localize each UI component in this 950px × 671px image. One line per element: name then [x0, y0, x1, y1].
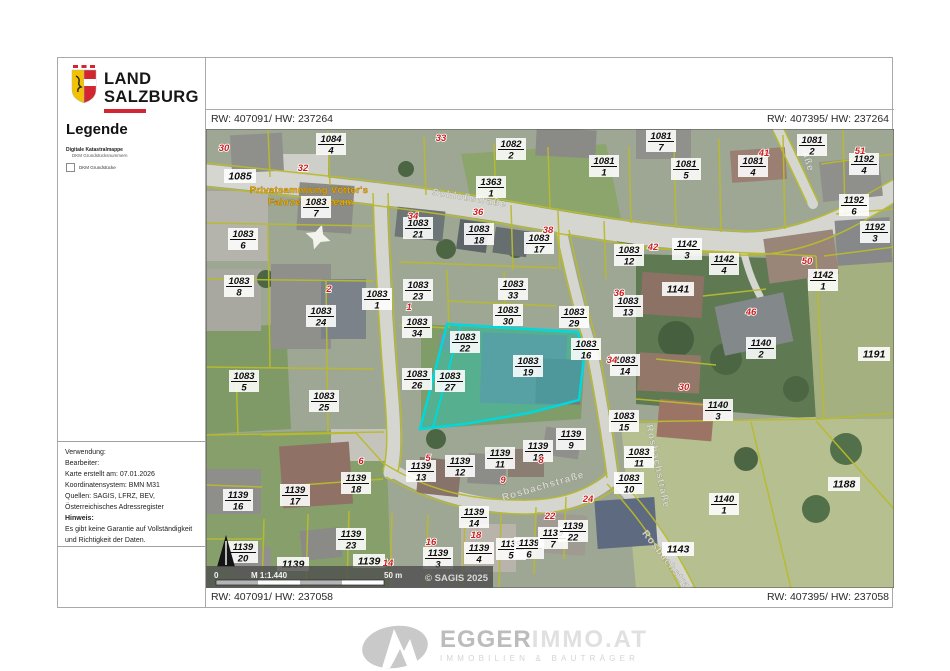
svg-text:24: 24: [315, 318, 327, 329]
parcel-label: 1141: [662, 282, 694, 296]
parcel-label: 10817: [646, 130, 676, 154]
house-number: 51: [855, 146, 866, 157]
svg-text:1139: 1139: [228, 490, 249, 501]
svg-text:25: 25: [318, 403, 330, 414]
house-number: 5: [425, 453, 431, 464]
parcel-label: 1191: [858, 347, 890, 361]
svg-text:4: 4: [327, 146, 334, 157]
house-number: 6: [358, 456, 364, 467]
coordinate-strip-top: RW: 407091/ HW: 237264 RW: 407395/ HW: 2…: [206, 113, 894, 125]
parcel-label: 113911: [485, 447, 515, 471]
parcel-label: 11402: [746, 337, 776, 361]
legend-title: Legende: [66, 121, 128, 138]
parcel-label: 11423: [672, 238, 702, 262]
house-number: 9: [500, 475, 506, 486]
parcel-label: 108334: [402, 316, 432, 340]
info-note-label: Hinweis:: [65, 513, 205, 524]
parcel-label: 10838: [224, 275, 254, 299]
svg-text:1: 1: [721, 506, 726, 517]
scalebar-zero: 0: [214, 571, 219, 580]
legend-checkbox-row: DKM Grundstücke: [66, 163, 196, 172]
info-line: Koordinatensystem: BMN M31: [65, 480, 205, 491]
svg-text:1140: 1140: [714, 494, 735, 505]
svg-text:1083: 1083: [313, 391, 335, 402]
parcel-label: 11926: [839, 194, 869, 218]
svg-text:14: 14: [620, 367, 631, 378]
svg-text:1188: 1188: [833, 479, 856, 491]
svg-text:1139: 1139: [490, 448, 511, 459]
parcel-label: 11424: [709, 253, 739, 277]
parcel-label: 10811: [589, 155, 619, 179]
svg-text:1139: 1139: [563, 521, 584, 532]
svg-text:14: 14: [469, 519, 480, 530]
svg-text:1083: 1083: [232, 229, 254, 240]
legend-checkbox-label: DKM Grundstücke: [79, 165, 116, 170]
svg-text:13: 13: [623, 308, 634, 319]
svg-text:16: 16: [581, 351, 592, 362]
egger-tagline: IMMOBILIEN & BAUTRÄGER: [440, 654, 648, 663]
svg-text:1191: 1191: [863, 349, 886, 361]
parcel-label: 113913: [406, 460, 436, 484]
svg-text:1139: 1139: [464, 507, 485, 518]
info-line: und Richtigkeit der Daten.: [65, 535, 205, 546]
parcel-label: 13631: [476, 176, 506, 200]
parcel-label: 10831: [362, 288, 392, 312]
svg-text:1139: 1139: [358, 556, 381, 568]
svg-text:7: 7: [313, 209, 319, 220]
parcel-label: 10815: [671, 158, 701, 182]
parcel-label: 108326: [402, 368, 432, 392]
house-number: 1: [406, 302, 411, 313]
svg-text:1083: 1083: [407, 280, 429, 291]
parcel-label: 108318: [464, 223, 494, 247]
sagis-copyright: © SAGIS 2025: [425, 573, 489, 584]
map-top-rule: [206, 109, 894, 110]
parcel-label: 11923: [860, 221, 890, 245]
svg-text:1081: 1081: [650, 131, 671, 142]
svg-text:1192: 1192: [865, 222, 886, 233]
egger-suffix: IMMO.AT: [532, 626, 648, 653]
svg-text:1083: 1083: [497, 305, 519, 316]
parcel-label: 108315: [609, 410, 639, 434]
parcel-label: 11421: [808, 269, 838, 293]
parcel-label: 108324: [306, 305, 336, 329]
svg-text:13: 13: [416, 473, 427, 484]
parcel-label: 11399: [556, 428, 586, 452]
document-frame: LAND SALZBURG Legende Digitale Katastral…: [57, 57, 893, 608]
svg-text:1139: 1139: [469, 543, 490, 554]
svg-text:9: 9: [568, 441, 574, 452]
svg-text:1139: 1139: [428, 548, 449, 559]
parcel-label: 10812: [797, 134, 827, 158]
coord-bottom-right: RW: 407395/ HW: 237058: [767, 591, 889, 603]
svg-text:1083: 1083: [575, 339, 597, 350]
svg-text:12: 12: [624, 257, 635, 268]
svg-text:6: 6: [851, 207, 857, 218]
svg-text:3: 3: [872, 234, 878, 245]
svg-text:3: 3: [684, 251, 690, 262]
svg-text:1139: 1139: [233, 542, 254, 553]
parcel-label: 113922: [558, 520, 588, 544]
svg-text:26: 26: [411, 381, 423, 392]
house-number: 36: [614, 288, 625, 299]
svg-text:22: 22: [459, 344, 471, 355]
aerial-map: SchloßstraßeRosbachstraßeRosbachstraßeRo…: [206, 129, 894, 588]
svg-text:1083: 1083: [628, 447, 650, 458]
parcel-label: 108319: [513, 355, 543, 379]
house-number: 30: [219, 143, 230, 154]
svg-text:1085: 1085: [228, 171, 252, 183]
svg-text:4: 4: [720, 266, 727, 277]
svg-text:1139: 1139: [341, 529, 362, 540]
svg-text:34: 34: [412, 329, 423, 340]
svg-text:1083: 1083: [233, 371, 255, 382]
house-number: 2: [325, 284, 332, 295]
parcel-label: 108325: [309, 390, 339, 414]
svg-text:2: 2: [507, 151, 514, 162]
parcel-label: 113914: [459, 506, 489, 530]
scalebar: 0 M 1:1.440 50 m © SAGIS 2025: [206, 566, 493, 588]
svg-text:1142: 1142: [677, 239, 698, 250]
svg-text:1139: 1139: [346, 473, 367, 484]
svg-text:6: 6: [240, 241, 246, 252]
parcel-label: 108327: [435, 370, 465, 394]
brand-line1: LAND: [104, 70, 199, 88]
svg-text:1140: 1140: [708, 400, 729, 411]
info-line: Quellen: SAGIS, LFRZ, BEV,: [65, 491, 205, 502]
svg-text:1: 1: [601, 168, 606, 179]
house-number: 34: [607, 355, 618, 366]
brand-text: LAND SALZBURG: [104, 64, 199, 113]
svg-text:1081: 1081: [675, 159, 696, 170]
svg-text:33: 33: [508, 291, 519, 302]
legend-checkbox-icon: [66, 163, 75, 172]
parcel-label: 108311: [624, 446, 654, 470]
svg-text:1083: 1083: [517, 356, 539, 367]
svg-text:1143: 1143: [667, 544, 690, 556]
info-line: Österreichisches Adressregister: [65, 502, 205, 513]
svg-text:1142: 1142: [813, 270, 834, 281]
coord-bottom-left: RW: 407091/ HW: 237058: [211, 591, 333, 603]
svg-text:10: 10: [624, 485, 635, 496]
svg-text:5: 5: [683, 171, 689, 182]
parcel-label: 10835: [229, 370, 259, 394]
svg-text:1083: 1083: [614, 355, 636, 366]
svg-text:1141: 1141: [667, 284, 690, 296]
svg-text:8: 8: [236, 288, 242, 299]
svg-text:1142: 1142: [714, 254, 735, 265]
house-number: 38: [543, 225, 554, 236]
coord-top-left: RW: 407091/ HW: 237264: [211, 113, 333, 125]
svg-text:1083: 1083: [439, 371, 461, 382]
info-note-lines: Es gibt keine Garantie auf Vollständigke…: [65, 524, 205, 546]
info-line: Es gibt keine Garantie auf Vollständigke…: [65, 524, 205, 535]
house-number: 16: [426, 537, 437, 548]
house-number: 24: [582, 494, 594, 505]
parcel-label: 108329: [559, 306, 589, 330]
coordinate-strip-bottom: RW: 407091/ HW: 237058 RW: 407395/ HW: 2…: [206, 591, 894, 603]
scalebar-scale: M 1:1.440: [251, 571, 288, 580]
parcel-label: 113912: [445, 455, 475, 479]
parcel-label: 108310: [614, 472, 644, 496]
svg-text:1082: 1082: [500, 139, 522, 150]
parcel-label: 113923: [336, 528, 366, 552]
scalebar-distance: 50 m: [384, 571, 402, 580]
parcel-label: 113918: [341, 472, 371, 496]
house-number: 22: [544, 511, 556, 522]
info-line: Verwendung:: [65, 447, 205, 458]
svg-text:4: 4: [860, 166, 867, 177]
svg-text:3: 3: [715, 412, 721, 423]
svg-text:2: 2: [757, 350, 764, 361]
svg-text:18: 18: [351, 485, 362, 496]
salzburg-logo: LAND SALZBURG: [71, 64, 199, 113]
svg-text:17: 17: [534, 245, 545, 256]
svg-text:15: 15: [619, 423, 630, 434]
house-number: 18: [471, 530, 482, 541]
svg-text:5: 5: [508, 551, 514, 562]
info-box-lines: Verwendung:Bearbeiter:Karte erstellt am:…: [65, 447, 205, 513]
egger-logo-icon: [360, 621, 430, 669]
svg-text:19: 19: [523, 368, 534, 379]
svg-text:1139: 1139: [285, 485, 306, 496]
parcel-label: 108322: [450, 331, 480, 355]
svg-text:1083: 1083: [618, 245, 640, 256]
svg-text:4: 4: [475, 555, 482, 566]
svg-text:1083: 1083: [563, 307, 585, 318]
svg-text:21: 21: [412, 230, 424, 241]
house-number: 50: [802, 256, 813, 267]
info-box: Verwendung:Bearbeiter:Karte erstellt am:…: [58, 441, 205, 547]
parcel-label: 108316: [571, 338, 601, 362]
svg-text:6: 6: [526, 550, 532, 561]
house-number: 33: [436, 133, 447, 144]
svg-text:1081: 1081: [801, 135, 822, 146]
svg-text:1083: 1083: [618, 473, 640, 484]
svg-text:16: 16: [233, 502, 244, 513]
svg-text:1083: 1083: [406, 369, 428, 380]
svg-text:1081: 1081: [593, 156, 614, 167]
svg-text:1083: 1083: [454, 332, 476, 343]
svg-text:7: 7: [550, 540, 556, 551]
svg-text:1139: 1139: [450, 456, 471, 467]
svg-text:1139: 1139: [519, 538, 540, 549]
svg-text:29: 29: [568, 319, 580, 330]
parcel-label: 11403: [703, 399, 733, 423]
parcel-label: 108333: [498, 278, 528, 302]
brand-line2: SALZBURG: [104, 88, 199, 106]
poi-label-line1: Privatsammlung Vötter's: [250, 185, 368, 196]
house-number: 32: [298, 163, 309, 174]
svg-text:1: 1: [374, 301, 379, 312]
egger-name: EGGER: [440, 626, 532, 653]
svg-text:1192: 1192: [844, 195, 865, 206]
parcel-label: 10822: [496, 138, 526, 162]
salzburg-coat-of-arms-icon: [71, 64, 97, 104]
parcel-label: 11394: [464, 542, 494, 566]
legend-group: Digitale Katastralmappe DKM Grundstücksn…: [66, 147, 196, 172]
svg-text:23: 23: [345, 541, 357, 552]
svg-text:1083: 1083: [613, 411, 635, 422]
house-number: 36: [473, 207, 484, 218]
svg-text:1083: 1083: [502, 279, 524, 290]
svg-text:1083: 1083: [468, 224, 490, 235]
parcel-label: 11401: [709, 493, 739, 517]
egger-wordmark: EGGERIMMO.AT: [440, 628, 648, 652]
map: SchloßstraßeRosbachstraßeRosbachstraßeRo…: [206, 129, 894, 588]
svg-text:1: 1: [488, 189, 493, 200]
house-number: 30: [679, 382, 690, 393]
egger-logo: EGGERIMMO.AT IMMOBILIEN & BAUTRÄGER: [360, 621, 648, 669]
parcel-label: 108323: [403, 279, 433, 303]
parcel-label: 113917: [280, 484, 310, 508]
parcel-label: 10836: [228, 228, 258, 252]
svg-text:1083: 1083: [406, 317, 428, 328]
parcel-label: 108312: [614, 244, 644, 268]
brand-red-underline: [104, 109, 146, 113]
svg-text:30: 30: [503, 317, 514, 328]
svg-text:1083: 1083: [228, 276, 250, 287]
svg-text:12: 12: [455, 468, 466, 479]
svg-text:1083: 1083: [305, 197, 327, 208]
svg-text:23: 23: [412, 292, 424, 303]
svg-text:22: 22: [567, 533, 579, 544]
house-number: 46: [745, 307, 757, 318]
parcel-label: 1188: [828, 477, 860, 491]
svg-text:1083: 1083: [310, 306, 332, 317]
page: LAND SALZBURG Legende Digitale Katastral…: [0, 0, 950, 671]
parcel-label: 10837: [301, 196, 331, 220]
svg-text:1083: 1083: [366, 289, 388, 300]
egger-logo-text: EGGERIMMO.AT IMMOBILIEN & BAUTRÄGER: [440, 628, 648, 663]
svg-text:5: 5: [241, 383, 247, 394]
legend-group-sublabel: DKM Grundstücksnummern: [72, 153, 196, 158]
svg-text:11: 11: [634, 459, 644, 470]
coord-top-right: RW: 407395/ HW: 237264: [767, 113, 889, 125]
svg-text:1139: 1139: [528, 441, 549, 452]
svg-text:2: 2: [808, 147, 815, 158]
svg-text:1084: 1084: [320, 134, 342, 145]
svg-text:11: 11: [495, 460, 505, 471]
parcel-label: 108330: [493, 304, 523, 328]
house-number: 34: [408, 211, 419, 222]
parcel-label: 1143: [662, 542, 694, 556]
info-line: Karte erstellt am: 07.01.2026: [65, 469, 205, 480]
parcel-label: 10844: [316, 133, 346, 157]
svg-text:20: 20: [237, 554, 249, 565]
svg-text:1139: 1139: [561, 429, 582, 440]
svg-text:7: 7: [658, 143, 664, 154]
svg-text:18: 18: [474, 236, 485, 247]
info-line: Bearbeiter:: [65, 458, 205, 469]
parcel-label: 1085: [224, 169, 256, 183]
house-number: 41: [758, 148, 770, 159]
parcel-label: 113916: [223, 489, 253, 513]
svg-text:17: 17: [290, 497, 301, 508]
svg-text:1: 1: [820, 282, 825, 293]
left-panel: LAND SALZBURG Legende Digitale Katastral…: [58, 58, 206, 607]
svg-text:27: 27: [444, 383, 456, 394]
svg-text:1363: 1363: [480, 177, 502, 188]
house-number: 8: [538, 455, 544, 466]
house-number: 42: [647, 242, 659, 253]
svg-text:4: 4: [749, 168, 756, 179]
svg-text:1140: 1140: [751, 338, 772, 349]
parcel-label: 1139: [353, 554, 385, 568]
